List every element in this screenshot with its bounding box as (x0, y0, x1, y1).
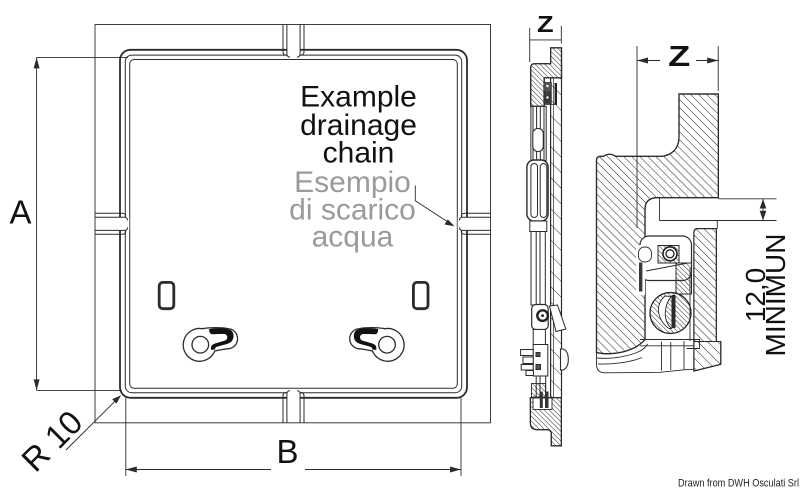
svg-text:chain: chain (323, 137, 395, 170)
svg-text:Drawn from DWH Osculati Srl: Drawn from DWH Osculati Srl (678, 478, 799, 490)
svg-text:R 10: R 10 (14, 403, 89, 478)
svg-text:B: B (276, 433, 298, 470)
svg-text:A: A (9, 194, 31, 231)
svg-text:acqua: acqua (312, 221, 394, 254)
svg-text:MINIMUN: MINIMUN (760, 234, 791, 357)
svg-text:Z: Z (537, 12, 554, 38)
svg-text:Z: Z (668, 41, 690, 72)
